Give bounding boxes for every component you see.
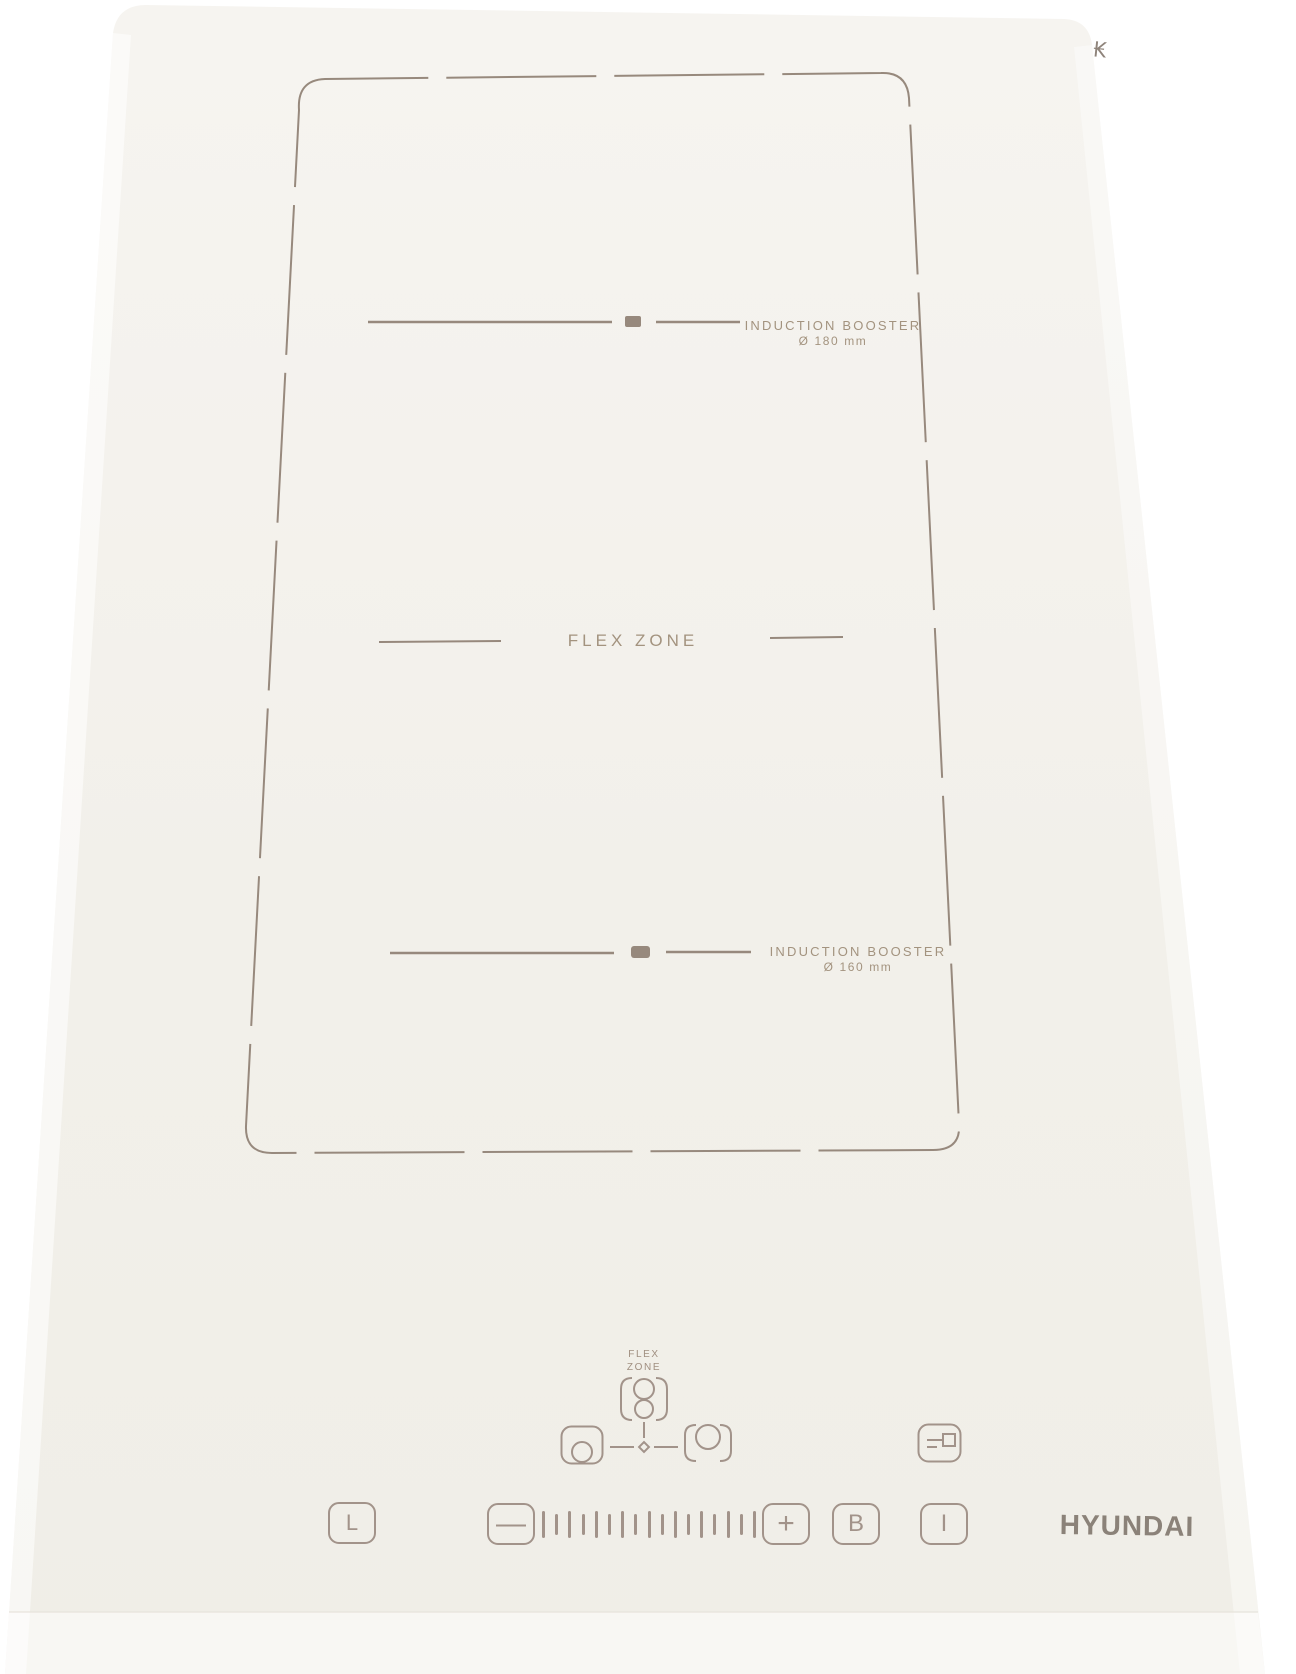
rear-zone-icon[interactable] [682,1423,734,1463]
slider-tick[interactable] [542,1511,545,1538]
slider-tick[interactable] [582,1514,585,1535]
plus-icon: + [777,1509,795,1539]
aux-function-button[interactable] [917,1423,962,1463]
slider-tick[interactable] [595,1511,598,1538]
slider-tick[interactable] [555,1514,558,1535]
power-slider[interactable] [542,1507,756,1541]
power-button-label: I [941,1510,948,1538]
slider-tick[interactable] [608,1514,611,1535]
slider-tick[interactable] [674,1511,677,1538]
slider-tick[interactable] [753,1511,756,1538]
flex-zone-icon[interactable] [618,1376,670,1422]
flex-selector-label-line2: ZONE [627,1361,661,1374]
zone-top-diameter: Ø 180 mm [799,334,868,348]
flex-selector-label: FLEX ZONE [627,1348,661,1374]
cooktop-photo: ₭ INDUCTION BOOSTER Ø 180 mm FLEX ZONE I… [0,0,1296,1674]
booster-button[interactable]: B [832,1503,880,1545]
slider-tick[interactable] [713,1514,716,1535]
power-button[interactable]: I [920,1503,968,1545]
front-edge-bevel [5,1612,1265,1674]
zone-top-label: INDUCTION BOOSTER [745,318,922,333]
lock-button[interactable]: L [328,1502,376,1544]
slider-tick[interactable] [634,1514,637,1535]
zone-bottom-label: INDUCTION BOOSTER [770,944,947,959]
slider-tick[interactable] [740,1514,743,1535]
lock-button-label: L [346,1510,358,1536]
slider-tick[interactable] [648,1511,651,1538]
slider-tick[interactable] [568,1511,571,1538]
minus-icon: — [496,1509,526,1539]
zone-bottom-diameter: Ø 160 mm [824,960,893,974]
flex-selector-label-line1: FLEX [627,1348,661,1361]
slider-tick[interactable] [727,1511,730,1538]
front-zone-icon[interactable] [560,1425,604,1465]
booster-button-label: B [848,1510,864,1538]
flex-zone-label: FLEX ZONE [568,631,698,651]
slider-tick[interactable] [661,1514,664,1535]
slider-tick[interactable] [700,1511,703,1538]
plus-button[interactable]: + [762,1503,810,1545]
slider-tick[interactable] [621,1511,624,1538]
glass-brand-mark: ₭ [1092,37,1108,62]
minus-button[interactable]: — [487,1503,535,1545]
slider-tick[interactable] [687,1514,690,1535]
hyundai-logo: HYUNDAI [1060,1509,1195,1543]
